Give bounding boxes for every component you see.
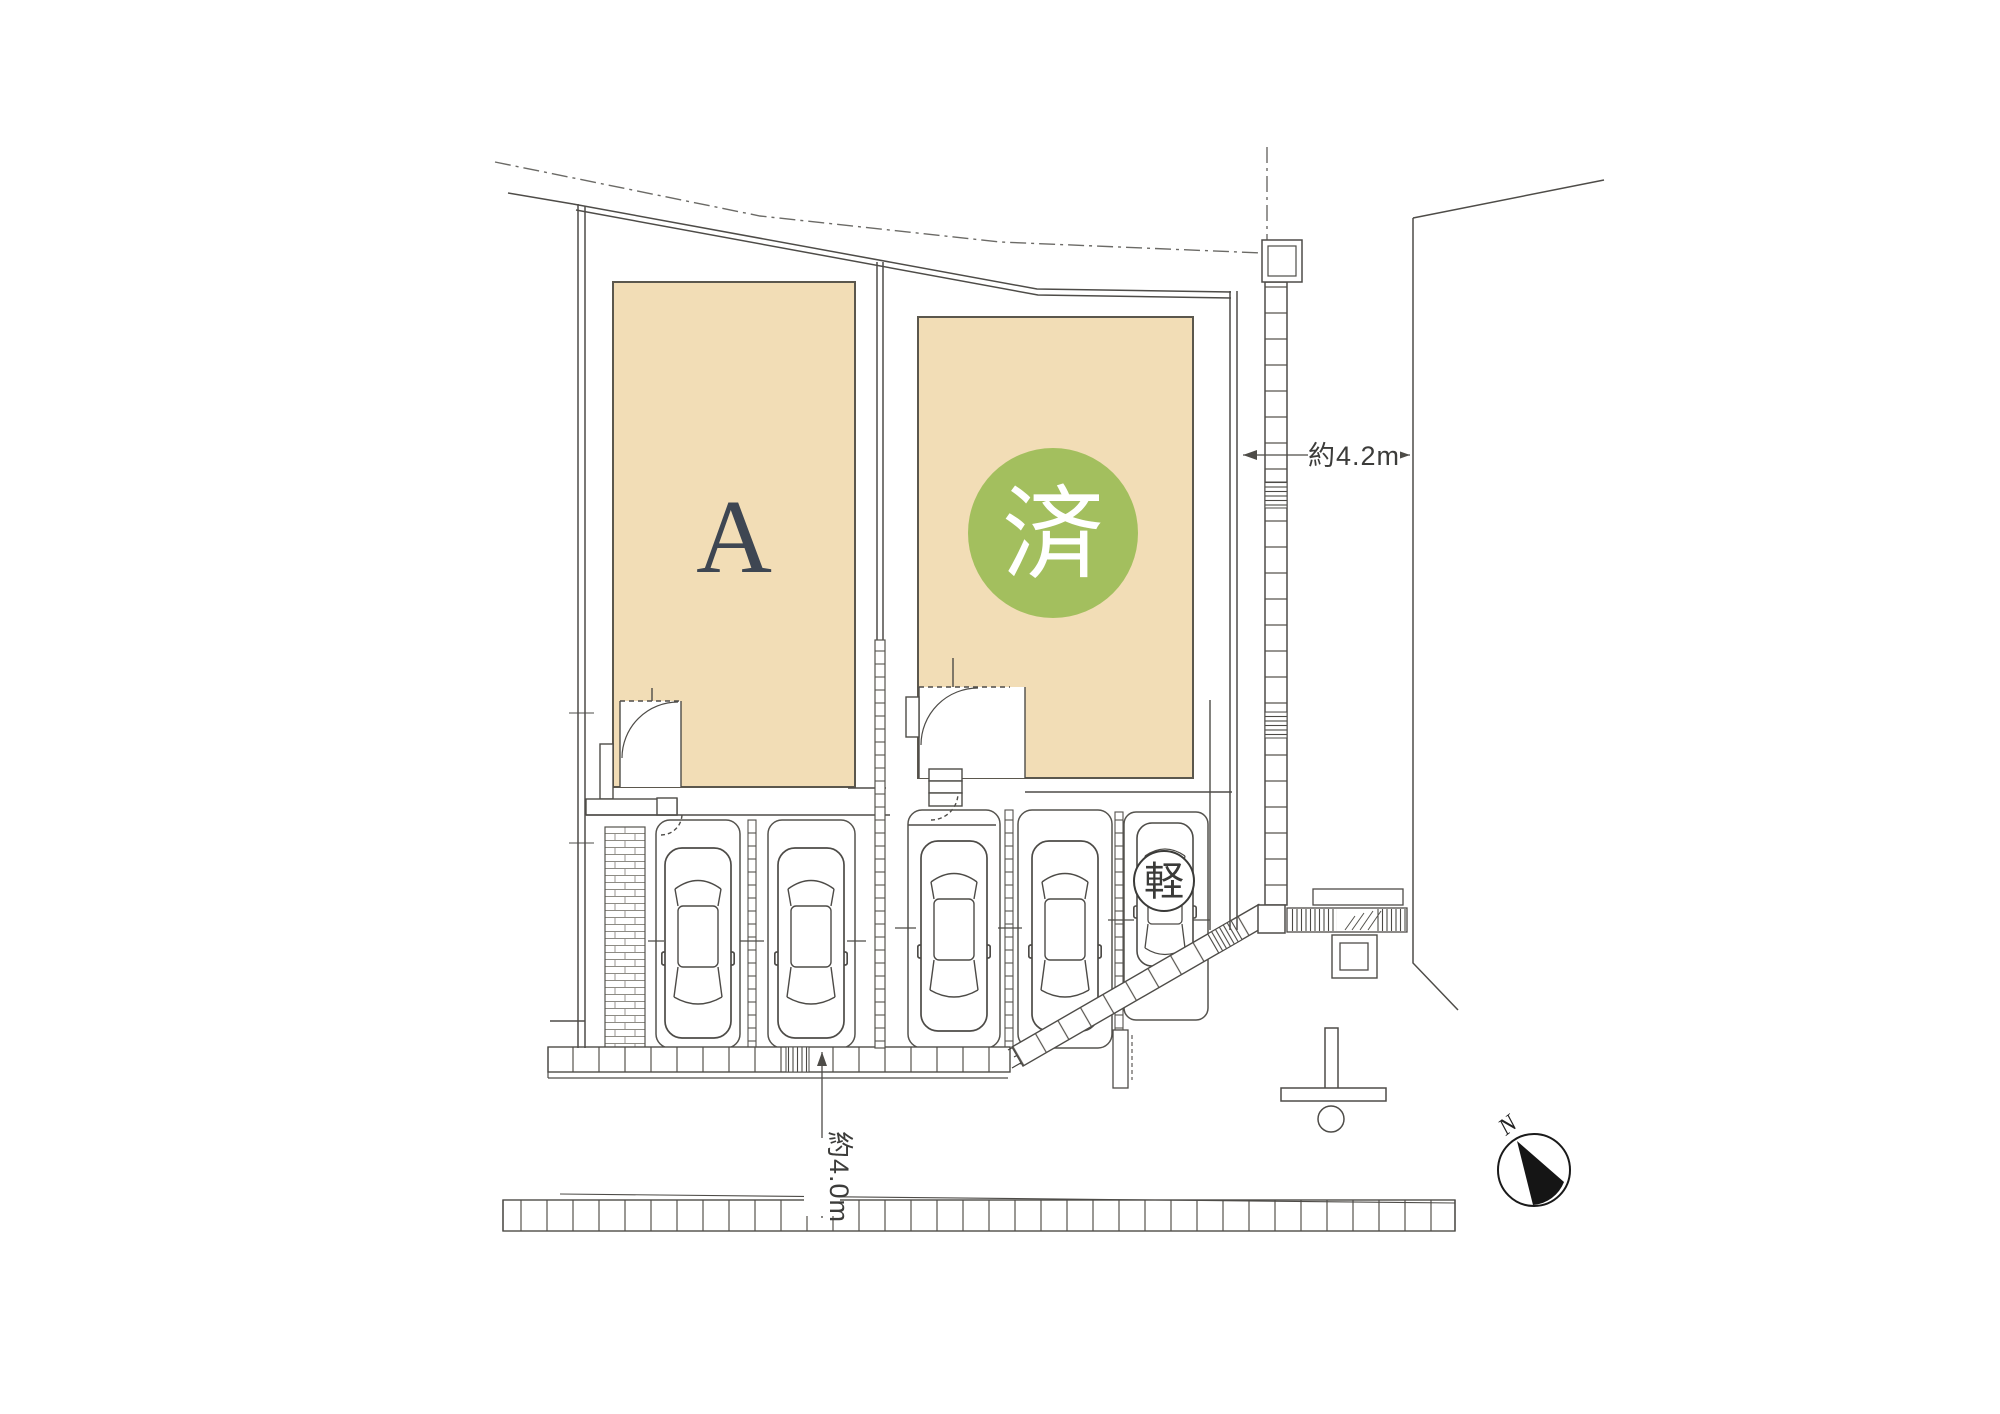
entrance-step-sold [906, 697, 919, 737]
dimension-south-label: 約4.0m [824, 1131, 854, 1223]
sold-badge-label: 済 [1002, 480, 1104, 593]
entrance-step-a [600, 744, 613, 799]
site-plan-drawing: A 済 軽 約4.2m 約4.0m N [0, 0, 2000, 1414]
car-s1 [918, 841, 990, 1031]
brick-walkway [605, 827, 645, 1048]
kei-parking-label: 軽 [1144, 859, 1184, 904]
site-plan-canvas: A 済 軽 約4.2m 約4.0m N [0, 0, 2000, 1414]
lot-a-label: A [696, 478, 772, 595]
south-road-curb [503, 1194, 1455, 1231]
wall-corner-post [1258, 905, 1285, 933]
dimension-east-label: 約4.2m [1308, 441, 1400, 471]
sold-badge: 済 [968, 448, 1138, 618]
curb-hatch-segment [786, 1047, 809, 1072]
lot-divider-fence [875, 640, 885, 1048]
car-a1 [662, 848, 734, 1038]
wall-stub [1113, 1030, 1128, 1088]
catch-basin [1332, 935, 1377, 978]
kei-parking-badge: 軽 [1134, 851, 1194, 911]
car-a2 [775, 848, 847, 1038]
